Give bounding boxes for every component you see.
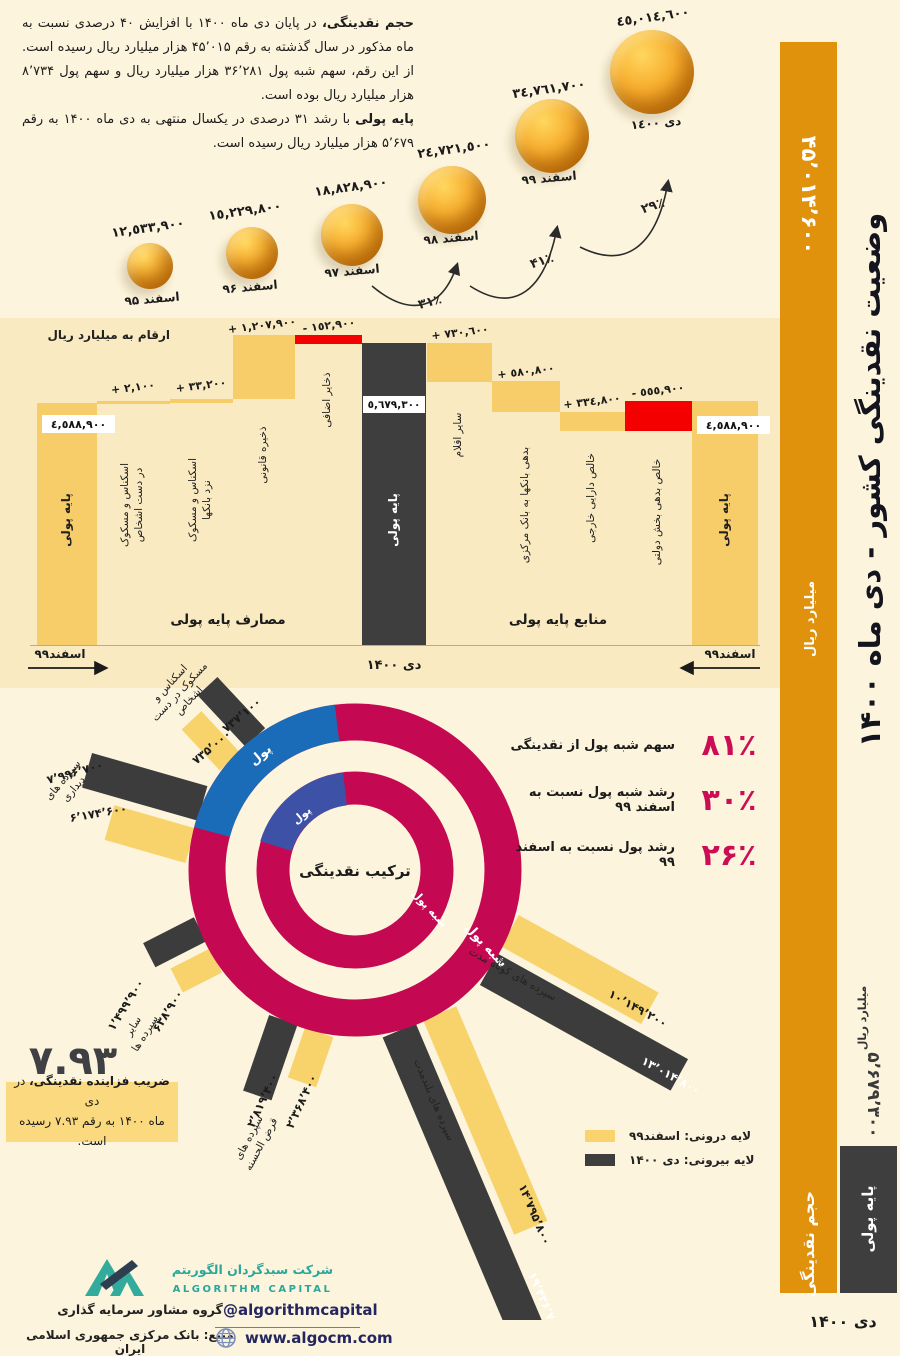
legend-label: لایه درونی: اسفند۹۹	[629, 1129, 751, 1143]
step-label-line: در دست اشخاص	[133, 468, 147, 543]
step-label: خالص بدهی بخش دولتی	[651, 430, 665, 594]
bubble-sphere-esfand97	[321, 204, 383, 266]
legend-swatch-yellow	[585, 1130, 615, 1142]
company-tagline: گروه مشاور سرمایه گذاری	[40, 1302, 240, 1317]
bar-label: پایه پولی	[386, 465, 402, 575]
monetary-base-label: پایه پولی	[856, 1159, 880, 1279]
stat-value: ۸۱٪	[691, 728, 767, 763]
step-label: ذخیره قانونی	[257, 400, 271, 510]
stat-row-quasi-share: ۸۱٪ سهم شبه پول از نقدینگی	[505, 723, 767, 767]
company-name-fa: شرکت سبدگردان الگوریتم	[160, 1262, 345, 1277]
legend-inner-layer: لایه درونی: اسفند۹۹	[585, 1128, 751, 1144]
stat-label: سهم شبه پول از نقدینگی	[505, 738, 675, 753]
radial-pair-longterm-deposits	[383, 1006, 589, 1320]
stat-label: رشد شبه پول نسبت به اسفند ۹۹	[505, 785, 675, 815]
bubble-sphere-esfand98	[418, 166, 486, 234]
liquidity-volume-unit: میلیارد ریال	[799, 534, 821, 704]
money-multiplier-note: ضریب فزاینده نقدینگی، در دی ماه ۱۴۰۰ به …	[6, 1082, 178, 1142]
telegram-link-row[interactable]: @algorithmcapital	[215, 1297, 360, 1328]
radial-pair-shortterm-deposits	[480, 915, 709, 1091]
uses-section-title: مصارف پایه پولی	[128, 612, 328, 628]
multiplier-line2: ماه ۱۴۰۰ به رقم ۷.۹۳ رسیده است.	[6, 1112, 178, 1152]
waterfall-use-step-negative	[295, 335, 362, 344]
legend-swatch-dark	[585, 1154, 615, 1166]
liquidity-volume-label: حجم نقدینگی	[793, 1159, 823, 1329]
legend-label: لایه بیرونی: دی ۱۴۰۰	[629, 1153, 754, 1167]
step-label: خالص دارایی خارجی	[585, 428, 599, 568]
website-url[interactable]: www.algocm.com	[245, 1329, 393, 1347]
stat-row-money-growth: ۲۶٪ رشد پول نسبت به اسفند ۹۹	[505, 833, 767, 877]
bubble-sphere-esfand95	[127, 243, 173, 289]
sources-section-title: منابع پایه پولی	[458, 612, 658, 628]
waterfall-center-value: ٥,٦٧٩,٣٠٠	[363, 396, 425, 413]
step-label-line: نزد بانکها	[201, 480, 215, 520]
step-label: بدهی بانکها به بانک مرکزی	[519, 413, 533, 597]
waterfall-use-step	[233, 335, 295, 399]
step-label: اسکناس و مسکوک در دست اشخاص	[119, 425, 147, 585]
inner-ring-money-segment	[276, 789, 345, 846]
bubble-sphere-esfand96	[226, 227, 278, 279]
bar-label: پایه پولی	[717, 465, 733, 575]
waterfall-use-step	[97, 401, 170, 404]
waterfall-base-left-value: ٤,٥٨٨,٩٠٠	[42, 415, 115, 433]
legend-outer-layer: لایه بیرونی: دی ۱۴۰۰	[585, 1152, 754, 1168]
waterfall-source-step-negative	[625, 401, 692, 431]
waterfall-baseline	[30, 645, 760, 646]
telegram-handle[interactable]: @algorithmcapital	[223, 1301, 378, 1319]
stat-row-quasi-growth: ۳۰٪ رشد شبه پول نسبت به اسفند ۹۹	[505, 778, 767, 822]
page-title: وضعیت نقدینگی کشور - دی ماه ۱۴۰۰	[842, 5, 898, 955]
axis-label-esfand99-right: اسفند۹۹	[695, 647, 765, 661]
multiplier-lead: ضریب فزاینده نقدینگی،	[29, 1074, 170, 1088]
bar-label: پایه پولی	[59, 465, 75, 575]
liquidity-volume-value: ۴۵٬۰۱۴٬۶۰۰	[782, 80, 836, 310]
infographic-page: حجم نقدینگی، در پایان دی ماه ۱۴۰۰ با افز…	[0, 0, 900, 1350]
stat-value: ۲۶٪	[691, 838, 767, 873]
waterfall-use-step	[170, 399, 233, 403]
unit-note: ارقام به میلیارد ریال	[30, 328, 170, 342]
stat-label: رشد پول نسبت به اسفند ۹۹	[505, 840, 675, 870]
period-label: دی ۱۴۰۰	[788, 1312, 898, 1331]
step-label-line: اسکناس و مسکوک	[119, 463, 133, 547]
monetary-base-value: ۵٬۶۷۹٬۳۰۰	[860, 1030, 886, 1160]
step-label: ذخایر اضافی	[321, 347, 335, 453]
bubble-sphere-dey1400	[610, 30, 694, 114]
stat-value: ۳۰٪	[691, 783, 767, 818]
waterfall-base-right-value: ٤,٥٨٨,٩٠٠	[697, 416, 770, 434]
step-label: اسکناس و مسکوک نزد بانکها	[187, 425, 215, 575]
arrow-99-1400	[580, 182, 668, 256]
bubble-sphere-esfand99	[515, 99, 589, 173]
company-name-en: ALGORITHM CAPITAL	[160, 1284, 345, 1295]
step-label: سایر اقلام	[452, 388, 466, 482]
bar-label-gharz: سپرده های قرض الحسنه	[230, 1109, 280, 1172]
globe-icon	[215, 1327, 237, 1349]
axis-label-esfand99-left: اسفند۹۹	[25, 647, 95, 661]
step-label-line: اسکناس و مسکوک	[187, 458, 201, 542]
data-source: منبع: بانک مرکزی جمهوری اسلامی ایران	[10, 1328, 250, 1356]
website-link-row[interactable]: www.algocm.com	[215, 1327, 393, 1349]
donut-center-label: ترکیب نقدینگی	[299, 862, 411, 880]
